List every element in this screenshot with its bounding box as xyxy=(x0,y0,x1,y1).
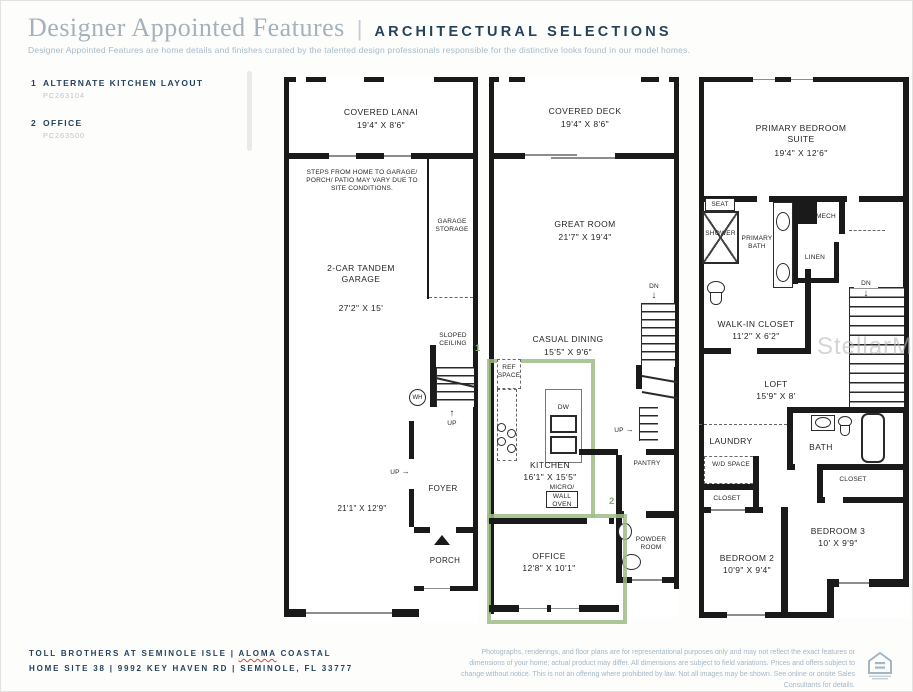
powder-room-label: POWDER ROOM xyxy=(625,536,677,552)
wall xyxy=(793,278,839,283)
wall xyxy=(699,612,834,618)
option-2-number: 2 xyxy=(31,118,37,128)
dishwasher-label: DW xyxy=(545,404,582,412)
page-subtitle: ARCHITECTURAL SELECTIONS xyxy=(374,24,671,40)
option-1-marker: 1 xyxy=(475,343,480,354)
stairs-up-label: UP xyxy=(440,420,464,428)
sink-basin xyxy=(550,436,577,454)
wall xyxy=(753,456,759,509)
page-header: Designer Appointed Features | ARCHITECTU… xyxy=(28,13,672,43)
option-2-code: PC263500 xyxy=(43,131,85,140)
ref-space-label: REF SPACE xyxy=(495,364,523,380)
wd-space-label: W/D SPACE xyxy=(704,461,758,469)
first-floor-plan: COVERED LANAI 19'4" X 8'6" STEPS FROM HO… xyxy=(284,77,478,623)
door-opening xyxy=(587,518,609,524)
bedroom3-dim: 10' X 9'9" xyxy=(798,538,878,549)
burner xyxy=(507,444,516,453)
office-label: OFFICE xyxy=(499,551,599,562)
wall-oven-label: WALL OVEN xyxy=(546,493,578,509)
page-title: Designer Appointed Features xyxy=(28,13,345,43)
wall xyxy=(284,77,296,82)
window xyxy=(632,577,662,583)
door-opening xyxy=(825,497,843,503)
burner xyxy=(497,423,506,432)
mech-label: MECH xyxy=(809,213,843,221)
walk-in-closet-dim: 11'2" X 6'2" xyxy=(706,331,806,342)
sink-basin xyxy=(550,415,577,433)
option-1-code: PC263104 xyxy=(43,91,85,100)
window xyxy=(727,612,765,618)
wall xyxy=(641,77,659,82)
stairs-dn-label: DN xyxy=(854,280,878,288)
window xyxy=(839,579,869,587)
wall xyxy=(409,421,414,459)
wall xyxy=(636,365,642,389)
wall xyxy=(839,196,845,234)
toilet-bowl xyxy=(840,425,850,436)
office-dim: 12'8" X 10'1" xyxy=(499,563,599,574)
wall xyxy=(427,159,429,299)
bath-label: BATH xyxy=(799,442,843,453)
mls-watermark: StellarMLS xyxy=(817,333,913,361)
bathtub xyxy=(861,413,885,463)
dashed-line xyxy=(849,230,885,231)
burner xyxy=(507,429,516,438)
door-opening xyxy=(731,348,757,354)
stairs xyxy=(641,303,675,367)
wall xyxy=(284,153,478,159)
lanai-label: COVERED LANAI xyxy=(311,107,451,118)
footer-model: ALOMA xyxy=(239,649,277,658)
door-opening xyxy=(329,153,356,159)
garage-label: 2-CAR TANDEM GARAGE xyxy=(321,263,401,286)
down-arrow-icon: ↓ xyxy=(639,291,669,301)
header-description: Designer Appointed Features are home det… xyxy=(28,45,690,55)
pantry-label: PANTRY xyxy=(624,460,670,468)
window xyxy=(753,77,775,82)
footer-sep: | xyxy=(231,649,235,658)
toilet-bowl xyxy=(710,292,722,305)
winder-tread xyxy=(642,391,678,399)
window xyxy=(791,77,813,82)
wall xyxy=(616,455,622,511)
wall xyxy=(306,77,326,82)
wall xyxy=(787,407,793,470)
casual-dining-label: CASUAL DINING xyxy=(508,334,628,345)
closet-doors xyxy=(711,507,745,513)
casual-dining-dim: 15'5" X 9'6" xyxy=(508,347,628,358)
winder-tread xyxy=(642,375,678,383)
garage-storage-label: GARAGE STORAGE xyxy=(430,218,474,234)
wall xyxy=(834,242,839,283)
floorplan-sheet: Designer Appointed Features | ARCHITECTU… xyxy=(0,0,913,692)
option-1-number: 1 xyxy=(31,78,37,88)
wall xyxy=(646,449,679,455)
loft-label: LOFT xyxy=(736,379,816,390)
wall xyxy=(579,449,618,455)
option-2-marker: 2 xyxy=(609,496,614,507)
wall xyxy=(859,196,909,202)
footer-disclaimer: Photographs, renderings, and floor plans… xyxy=(453,648,855,691)
down-arrow-icon: ↓ xyxy=(854,289,878,299)
door-opening xyxy=(795,464,817,470)
primary-suite-dim: 19'4" X 12'6" xyxy=(746,148,856,159)
bedroom3-label: BEDROOM 3 xyxy=(798,526,878,537)
second-floor-plan: COVERED DECK 19'4" X 8'6" GREAT ROOM 21'… xyxy=(489,77,679,617)
slider-panel xyxy=(551,157,615,159)
wh-label: WH xyxy=(413,395,423,401)
footer-model-suffix: COASTAL xyxy=(281,649,332,658)
sloped-ceiling-label: SLOPED CEILING xyxy=(432,332,474,348)
door-opening xyxy=(430,527,456,533)
window xyxy=(519,605,547,612)
footer-community-line: TOLL BROTHERS AT SEMINOLE ISLE | ALOMA C… xyxy=(29,649,331,658)
footer-address: HOME SITE 38 | 9992 KEY HAVEN RD | SEMIN… xyxy=(29,664,353,673)
burner xyxy=(497,437,506,446)
option-1-label: ALTERNATE KITCHEN LAYOUT xyxy=(43,78,203,88)
great-room-label: GREAT ROOM xyxy=(515,219,655,230)
dashed-line xyxy=(699,424,787,425)
footer-community: TOLL BROTHERS AT SEMINOLE ISLE xyxy=(29,649,227,658)
stairs xyxy=(639,407,658,441)
deck-dim: 19'4" X 8'6" xyxy=(515,119,655,130)
bedroom2-label: BEDROOM 2 xyxy=(707,553,787,564)
dashed-line xyxy=(429,297,473,298)
wall xyxy=(489,77,499,82)
door-opening xyxy=(624,511,646,518)
closet-b2-label: CLOSET xyxy=(707,495,747,503)
stairs-up-label: UP → xyxy=(607,426,641,435)
window xyxy=(551,605,579,612)
stairs xyxy=(436,367,474,407)
slider-panel xyxy=(525,154,577,156)
entry-door-marker xyxy=(434,535,450,545)
steps-note: STEPS FROM HOME TO GARAGE/ PORCH/ PATIO … xyxy=(304,169,420,193)
water-heater: WH xyxy=(409,389,426,406)
porch-opening xyxy=(424,586,450,591)
linen-label: LINEN xyxy=(795,254,835,262)
foyer-label: FOYER xyxy=(414,484,472,494)
sink xyxy=(776,263,790,282)
foyer-up-label: UP → xyxy=(380,468,420,477)
bedroom2-dim: 10'9" X 9'4" xyxy=(707,565,787,576)
equal-housing-logo xyxy=(867,651,893,681)
garage-dim2: 21'1" X 12'9" xyxy=(310,504,414,514)
deck-label: COVERED DECK xyxy=(515,106,655,117)
lanai-dim: 19'4" X 8'6" xyxy=(311,120,451,131)
wall xyxy=(364,77,384,82)
kitchen-dim: 16'1" X 15'5" xyxy=(505,472,595,483)
closet-b3-label: CLOSET xyxy=(831,476,875,484)
loft-dim: 15'9" X 8' xyxy=(736,391,816,402)
wall xyxy=(787,407,903,413)
great-room-dim: 21'7" X 19'4" xyxy=(515,232,655,243)
seat-label: SEAT xyxy=(705,201,735,209)
laundry-label: LAUNDRY xyxy=(703,436,759,447)
scrollbar[interactable] xyxy=(247,71,252,151)
wall xyxy=(699,484,759,490)
option-2-label: OFFICE xyxy=(43,118,83,128)
garage-door xyxy=(306,609,392,617)
garage-dim: 27'2" X 15' xyxy=(311,303,411,314)
wall xyxy=(509,77,525,82)
wall xyxy=(805,269,811,354)
up-arrow-icon: ↑ xyxy=(440,409,464,419)
primary-suite-label: PRIMARY BEDROOM SUITE xyxy=(746,123,856,146)
walk-in-closet-label: WALK-IN CLOSET xyxy=(706,319,806,330)
wall xyxy=(434,77,478,82)
sink xyxy=(776,212,790,231)
kitchen-label: KITCHEN xyxy=(510,460,590,471)
title-divider: | xyxy=(357,16,363,42)
sink xyxy=(815,417,831,428)
porch-label: PORCH xyxy=(416,556,474,566)
door-opening xyxy=(384,153,411,159)
